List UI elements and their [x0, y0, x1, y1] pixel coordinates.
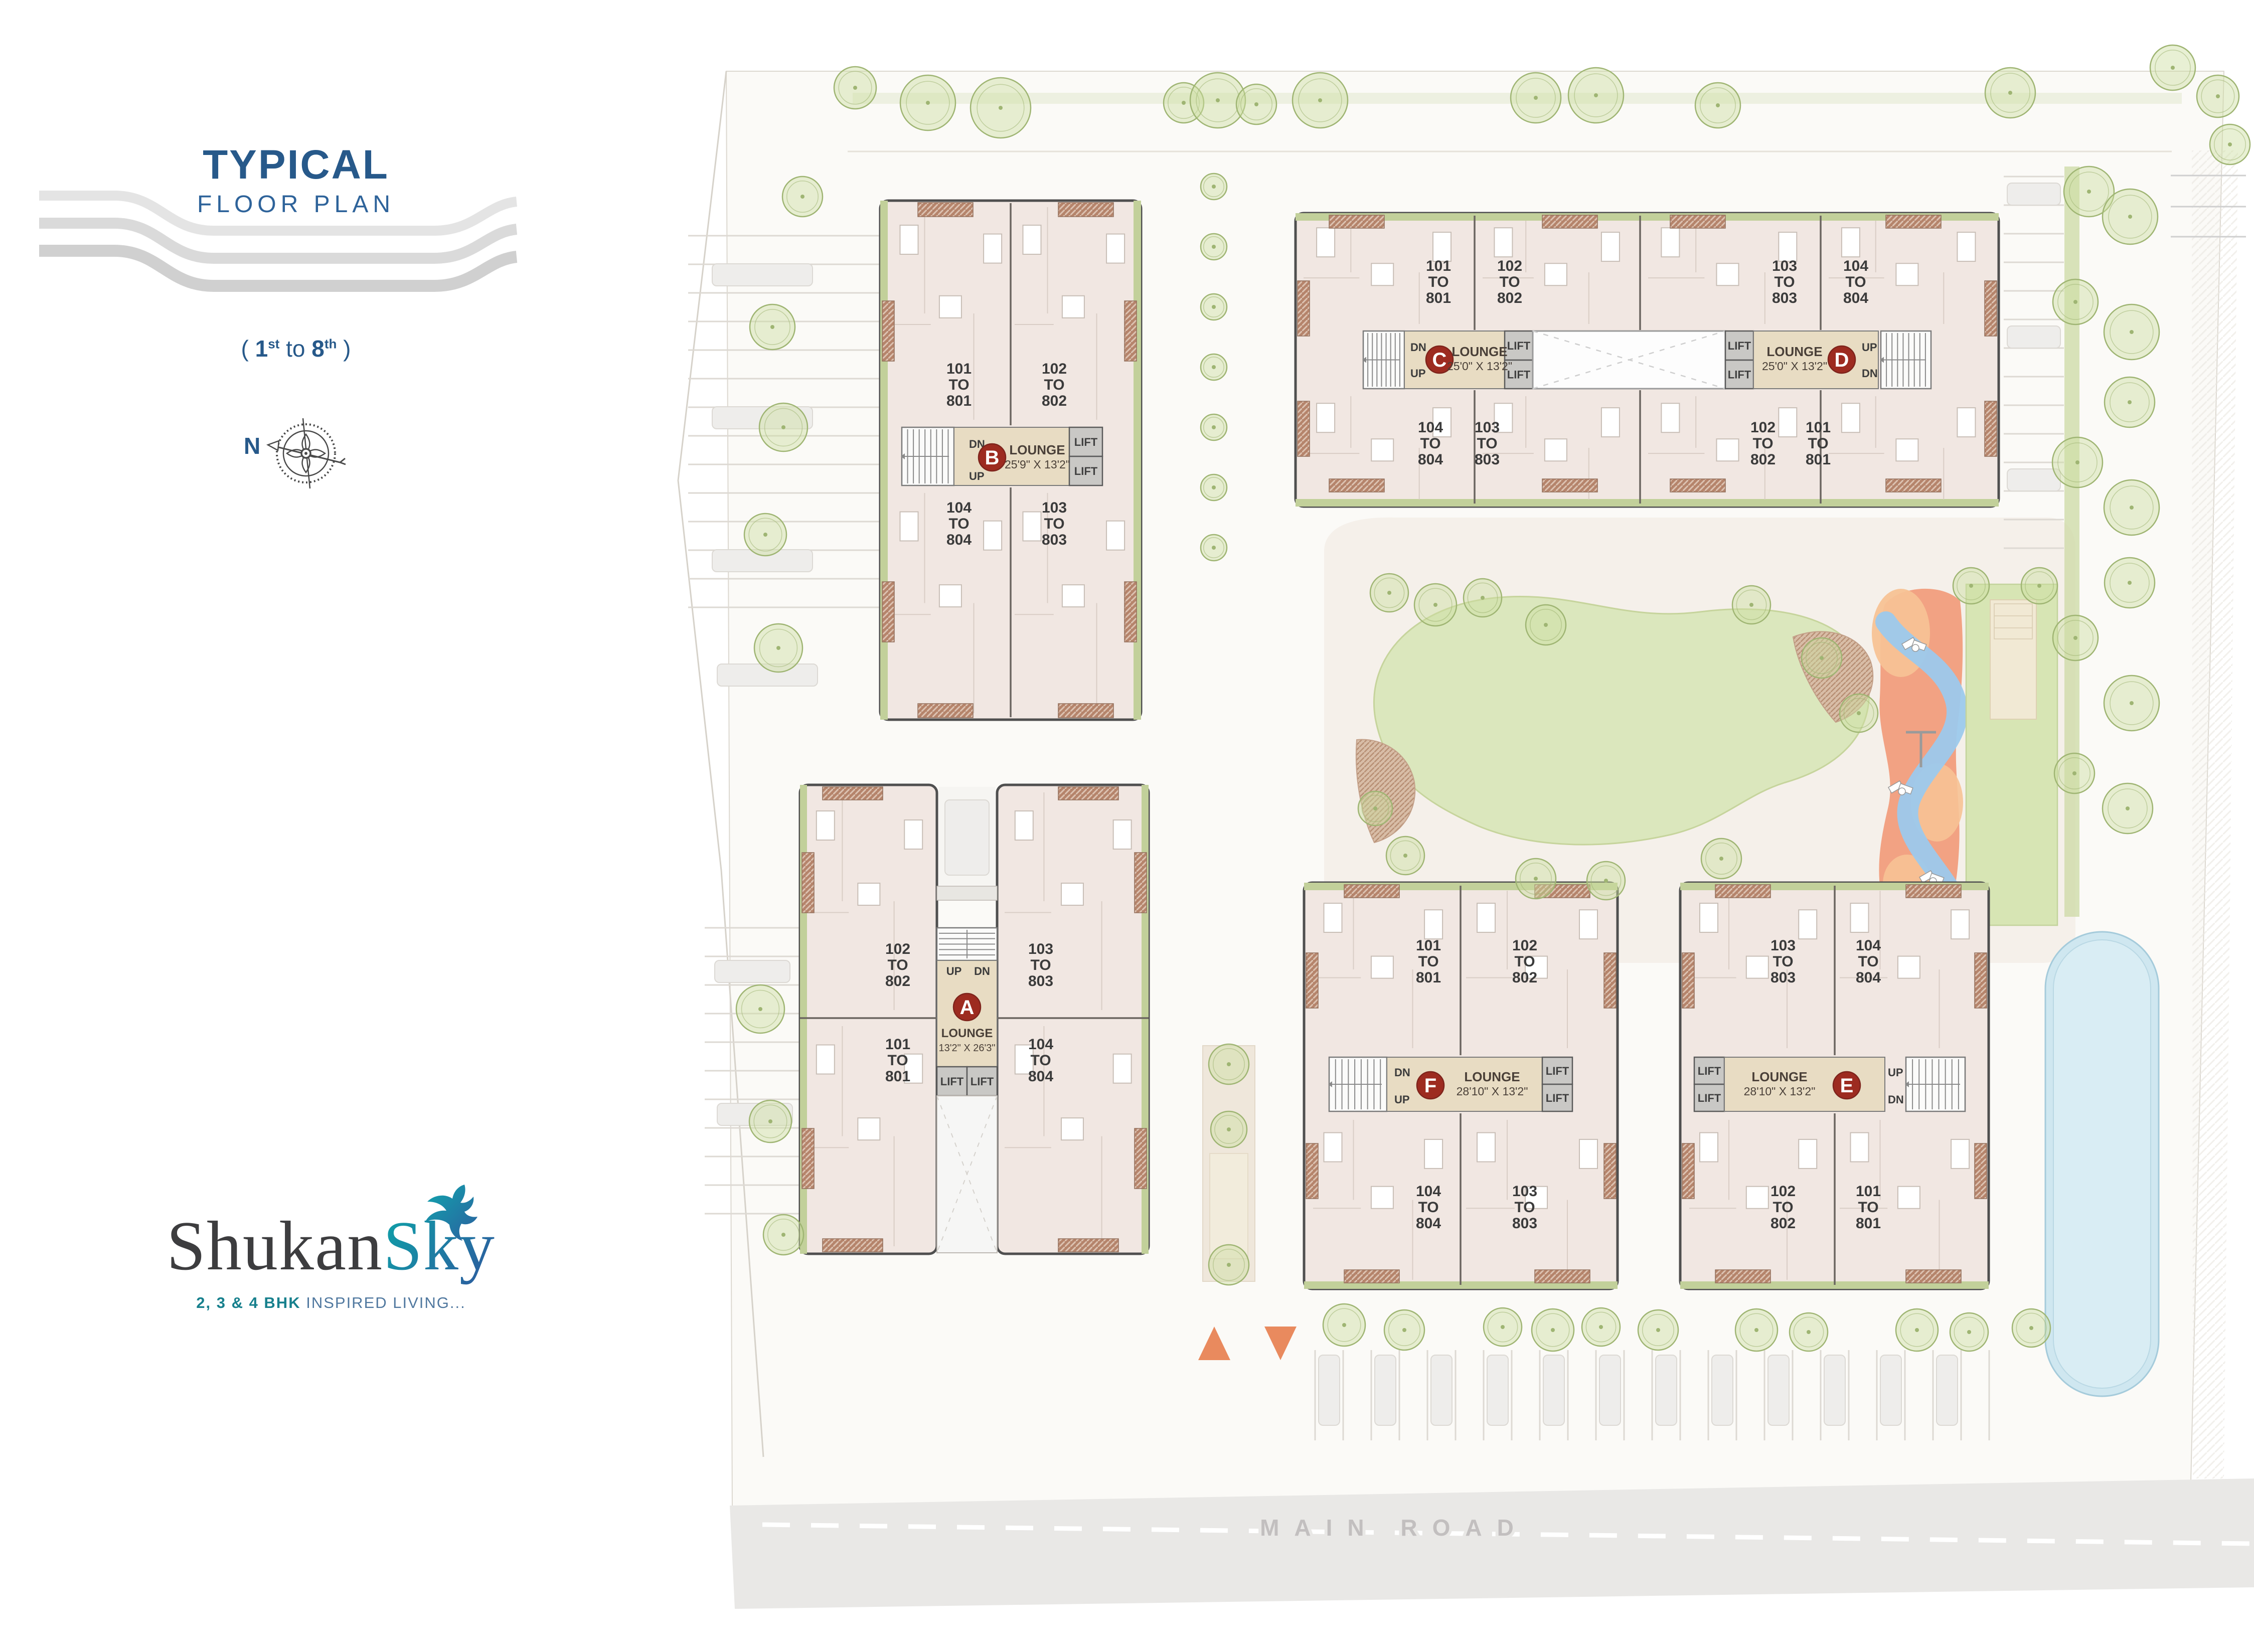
tree-icon — [2021, 568, 2057, 604]
unit-label: TO — [1499, 274, 1520, 290]
tree-icon — [1735, 1309, 1778, 1351]
unit-label: 102 — [1512, 937, 1537, 954]
floor-range-mid: to — [279, 336, 311, 362]
unit-label: TO — [1044, 377, 1064, 393]
tree-icon — [1568, 68, 1624, 123]
tree-icon — [744, 514, 786, 556]
lift-label: LIFT — [1507, 340, 1531, 352]
lift-label: LIFT — [1728, 340, 1751, 352]
tree-icon — [736, 985, 784, 1033]
unit-label: 802 — [1750, 451, 1776, 468]
tree-icon — [2105, 377, 2155, 427]
unit-label: 103 — [1512, 1183, 1537, 1200]
building-badge: D — [1835, 349, 1849, 371]
tree-icon — [1358, 791, 1392, 825]
building-c-d-plan: LIFTLIFTLIFTLIFTDNUPCLOUNGE25'0" X 13'2"… — [1296, 213, 1999, 507]
unit-label: 803 — [1042, 532, 1067, 548]
floor-range-to: 8 — [311, 336, 325, 362]
swimming-pool — [2045, 932, 2159, 1396]
unit-label: 804 — [1856, 969, 1881, 986]
tree-icon — [1526, 605, 1566, 645]
floor-range-suffix: ) — [337, 336, 351, 362]
tree-icon — [2210, 124, 2250, 164]
unit-label: 103 — [1475, 419, 1500, 436]
lift-label: LIFT — [1074, 465, 1098, 477]
unit-label: TO — [887, 1052, 908, 1069]
unit-label: TO — [1514, 1199, 1535, 1216]
building-badge: F — [1424, 1075, 1436, 1097]
unit-label: 103 — [1770, 937, 1796, 954]
tree-icon — [1384, 1310, 1424, 1350]
unit-label: 804 — [1416, 1215, 1441, 1232]
unit-label: 101 — [1416, 937, 1441, 954]
unit-label: 802 — [1770, 1215, 1796, 1232]
stairs-up-label: UP — [969, 470, 985, 482]
unit-label: 804 — [1843, 290, 1868, 306]
unit-label: TO — [1418, 953, 1438, 970]
tree-icon — [1236, 84, 1276, 124]
unit-label: 802 — [1497, 290, 1522, 306]
unit-label: 804 — [1418, 451, 1443, 468]
lounge-size: 28'10" X 13'2" — [1744, 1085, 1816, 1098]
unit-label: 101 — [1856, 1183, 1881, 1200]
floor-range: ( 1st to 8th ) — [75, 335, 517, 362]
unit-label: TO — [1044, 516, 1064, 532]
lift-label: LIFT — [1546, 1065, 1569, 1077]
tree-icon — [1484, 1308, 1522, 1346]
tree-icon — [1587, 862, 1625, 900]
unit-label: 101 — [885, 1036, 910, 1053]
unit-label: 803 — [1512, 1215, 1537, 1232]
unit-label: 804 — [1028, 1068, 1053, 1085]
tree-icon — [1414, 584, 1457, 626]
tree-icon — [1209, 1245, 1249, 1285]
tree-icon — [2012, 1309, 2050, 1347]
unit-label: TO — [1514, 953, 1535, 970]
building-a-plan: UPDNALOUNGE13'2" X 26'3"LIFTLIFT102TO802… — [800, 785, 1149, 1254]
building-f-plan: LIFTLIFTDNUPFLOUNGE28'10" X 13'2"101TO80… — [1304, 883, 1618, 1289]
unit-label: TO — [1845, 274, 1866, 290]
unit-label: 104 — [1028, 1036, 1053, 1053]
tree-icon — [2103, 189, 2158, 244]
tree-icon — [2053, 615, 2098, 660]
unit-label: 801 — [1856, 1215, 1881, 1232]
floor-plan-page: { "header": { "title": "TYPICAL", "subti… — [0, 0, 2254, 1652]
unit-label: 802 — [885, 973, 910, 989]
unit-label: 803 — [1770, 969, 1796, 986]
unit-label: 104 — [1418, 419, 1443, 436]
tagline-rest: INSPIRED LIVING... — [306, 1294, 466, 1311]
unit-label: TO — [1773, 1199, 1793, 1216]
lounge-label: LOUNGE — [1766, 344, 1822, 359]
lift-label: LIFT — [1698, 1065, 1721, 1077]
unit-label: 801 — [1806, 451, 1831, 468]
stairs-up-label: UP — [1862, 341, 1877, 354]
tree-icon — [1293, 73, 1348, 128]
compass-icon — [266, 414, 346, 494]
lounge-label: LOUNGE — [1452, 344, 1507, 359]
building-badge: C — [1432, 349, 1447, 371]
lift-label: LIFT — [971, 1075, 994, 1088]
stairs-up-label: UP — [946, 965, 962, 977]
lounge-label: LOUNGE — [1009, 442, 1065, 457]
unit-label: TO — [1808, 435, 1828, 452]
stairs-up-label: UP — [1888, 1066, 1903, 1079]
tree-icon — [1511, 73, 1561, 123]
stairs-dn-label: DN — [1410, 341, 1426, 354]
unit-label: 103 — [1042, 500, 1067, 516]
tree-icon — [1201, 294, 1227, 320]
unit-label: 802 — [1042, 393, 1067, 409]
unit-label: TO — [887, 957, 908, 973]
unit-label: 102 — [1042, 361, 1067, 377]
stairs-up-label: UP — [1394, 1093, 1410, 1106]
lift-label: LIFT — [1546, 1092, 1569, 1104]
unit-label: 803 — [1028, 973, 1053, 989]
floor-range-prefix: ( — [241, 336, 255, 362]
main-road-label: MAIN ROAD — [1260, 1515, 1529, 1541]
tree-icon — [2150, 45, 2195, 90]
tree-icon — [971, 78, 1031, 138]
hummingbird-icon — [420, 1182, 486, 1242]
tree-icon — [782, 177, 823, 217]
tree-icon — [1201, 354, 1227, 380]
tree-icon — [2104, 676, 2159, 731]
lounge-label: LOUNGE — [1464, 1069, 1520, 1084]
lift-label: LIFT — [940, 1075, 964, 1088]
unit-label: 802 — [1512, 969, 1537, 986]
unit-label: TO — [1030, 957, 1051, 973]
tree-icon — [1790, 1313, 1828, 1351]
tree-icon — [2197, 75, 2239, 117]
unit-label: 801 — [1426, 290, 1451, 306]
tree-icon — [1802, 638, 1842, 678]
unit-label: TO — [1752, 435, 1773, 452]
unit-label: 803 — [1475, 451, 1500, 468]
unit-label: 104 — [1416, 1183, 1441, 1200]
unit-label: TO — [1858, 1199, 1878, 1216]
tree-icon — [759, 403, 808, 451]
tree-icon — [2104, 480, 2159, 535]
lift-label: LIFT — [1728, 369, 1751, 381]
tree-icon — [1953, 568, 1989, 604]
unit-label: TO — [1477, 435, 1497, 452]
unit-label: TO — [1773, 953, 1793, 970]
tree-icon — [750, 304, 795, 350]
floor-range-to-sup: th — [325, 337, 337, 352]
stairs-up-label: UP — [1410, 367, 1426, 380]
unit-label: 104 — [1856, 937, 1881, 954]
lounge-size: 25'9" X 13'2" — [1005, 458, 1070, 471]
lift-label: LIFT — [1698, 1092, 1721, 1104]
tree-icon — [2054, 753, 2095, 793]
unit-label: 103 — [1028, 941, 1053, 957]
north-label: N — [244, 432, 260, 459]
building-e-plan: LIFTLIFTLOUNGE28'10" X 13'2"EUPDN103TO80… — [1680, 883, 1989, 1289]
unit-label: TO — [948, 516, 969, 532]
tree-icon — [2103, 783, 2153, 834]
tree-icon — [1516, 859, 1556, 899]
tree-icon — [1201, 535, 1227, 561]
unit-label: TO — [1428, 274, 1448, 290]
tree-icon — [1638, 1310, 1678, 1350]
tree-icon — [1386, 837, 1424, 875]
unit-label: 803 — [1772, 290, 1797, 306]
brand-tagline: 2, 3 & 4 BHK INSPIRED LIVING... — [125, 1294, 537, 1312]
tagline-bhk: 2, 3 & 4 BHK — [196, 1294, 300, 1311]
tree-icon — [1695, 83, 1740, 128]
brand-primary: Shukan — [167, 1207, 383, 1285]
unit-label: 102 — [885, 941, 910, 957]
tree-icon — [1896, 1309, 1938, 1351]
floor-range-from: 1 — [255, 336, 268, 362]
unit-label: TO — [1420, 435, 1440, 452]
tree-icon — [1732, 586, 1770, 624]
unit-label: 102 — [1750, 419, 1776, 436]
tree-icon — [2053, 279, 2098, 324]
lounge-size: 25'0" X 13'2" — [1447, 360, 1512, 373]
tree-icon — [1985, 68, 2035, 118]
tree-icon — [1201, 474, 1227, 501]
stairs-dn-label: DN — [1888, 1093, 1904, 1106]
tree-icon — [1323, 1304, 1365, 1346]
unit-label: 101 — [1806, 419, 1831, 436]
tree-icon — [2052, 437, 2103, 487]
tree-icon — [900, 75, 955, 130]
tree-icon — [2105, 558, 2155, 608]
tree-icon — [834, 67, 876, 109]
tree-icon — [1211, 1111, 1247, 1147]
lounge-label: LOUNGE — [1751, 1069, 1807, 1084]
tree-icon — [1209, 1044, 1249, 1084]
building-badge: B — [985, 447, 1000, 469]
tree-icon — [1201, 234, 1227, 260]
unit-label: TO — [1418, 1199, 1438, 1216]
lift-label: LIFT — [1074, 436, 1098, 448]
unit-label: TO — [1030, 1052, 1051, 1069]
brand-logo: ShukanSky 2, 3 & 4 BHK INSPIRED LIVING..… — [125, 1208, 537, 1312]
stairs-dn-label: DN — [1862, 367, 1878, 380]
unit-label: 101 — [946, 361, 972, 377]
building-b-plan: LIFTLIFTDNUPBLOUNGE25'9" X 13'2"101TO801… — [880, 201, 1141, 720]
tree-icon — [763, 1215, 803, 1255]
unit-label: 101 — [1426, 258, 1451, 274]
swoosh-decoration-icon — [39, 187, 521, 337]
tree-icon — [1370, 574, 1408, 612]
tree-icon — [1201, 414, 1227, 440]
lounge-label: LOUNGE — [941, 1027, 993, 1040]
unit-label: TO — [948, 377, 969, 393]
stairs-dn-label: DN — [974, 965, 990, 977]
unit-label: TO — [1774, 274, 1795, 290]
unit-label: 104 — [946, 500, 972, 516]
tree-icon — [2104, 304, 2159, 360]
unit-label: TO — [1858, 953, 1878, 970]
unit-label: 801 — [885, 1068, 910, 1085]
tree-icon — [1201, 174, 1227, 200]
stairs-dn-label: DN — [1394, 1066, 1410, 1079]
tree-icon — [1582, 1308, 1620, 1346]
page-title: TYPICAL — [75, 144, 517, 186]
tree-icon — [1532, 1309, 1574, 1351]
unit-label: 102 — [1497, 258, 1522, 274]
lounge-size: 28'10" X 13'2" — [1457, 1085, 1528, 1098]
tree-icon — [1840, 694, 1878, 732]
tree-icon — [749, 1100, 791, 1142]
unit-label: 104 — [1843, 258, 1868, 274]
unit-label: 801 — [946, 393, 972, 409]
building-badge: E — [1840, 1075, 1854, 1097]
floor-range-from-sup: st — [268, 337, 279, 352]
tree-icon — [754, 624, 802, 672]
tree-icon — [1950, 1313, 1988, 1351]
unit-label: 102 — [1770, 1183, 1796, 1200]
building-badge: A — [960, 997, 975, 1019]
lounge-size: 25'0" X 13'2" — [1762, 360, 1827, 373]
lounge-size: 13'2" X 26'3" — [938, 1043, 995, 1054]
tree-icon — [1464, 579, 1502, 617]
unit-label: 804 — [946, 532, 972, 548]
tree-icon — [1701, 839, 1741, 879]
unit-label: 103 — [1772, 258, 1797, 274]
unit-label: 801 — [1416, 969, 1441, 986]
